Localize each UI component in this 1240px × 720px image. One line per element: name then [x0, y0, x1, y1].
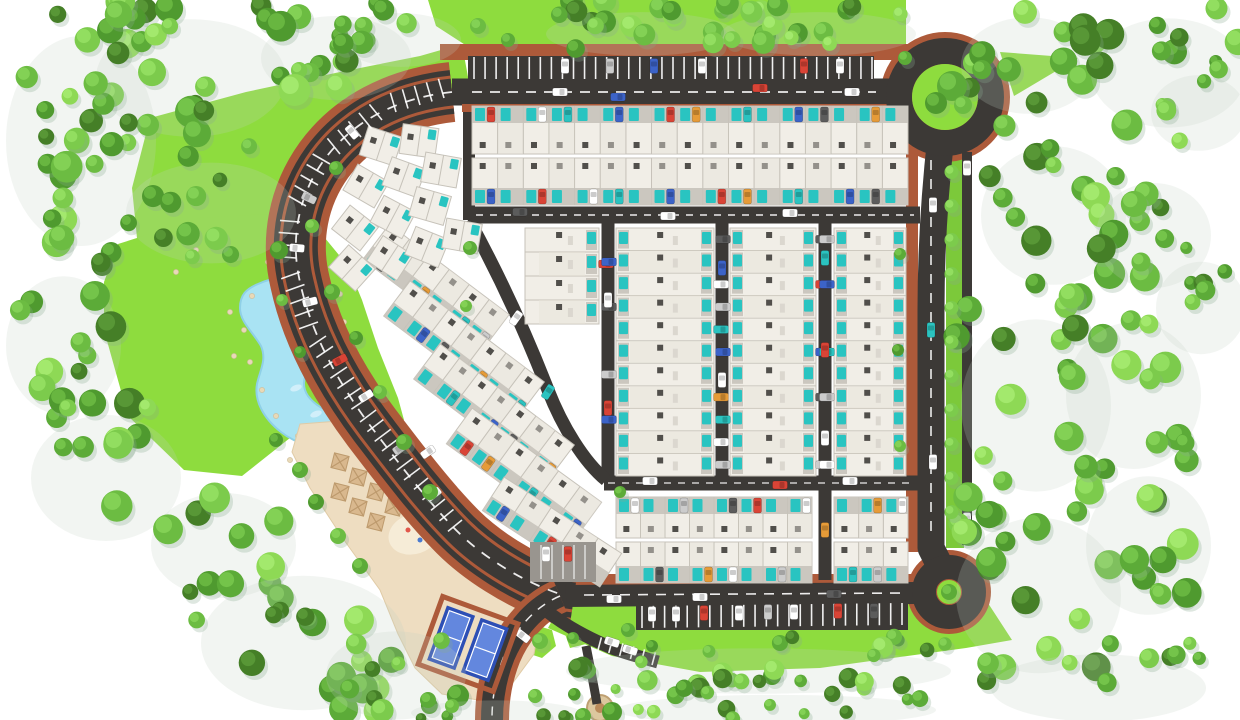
car	[821, 251, 829, 266]
car	[843, 477, 858, 485]
car	[700, 606, 708, 621]
car	[820, 235, 835, 243]
car	[929, 198, 937, 213]
car	[743, 107, 751, 122]
car	[487, 107, 495, 122]
car	[845, 88, 860, 96]
car	[821, 343, 829, 358]
car	[680, 498, 688, 513]
car	[834, 604, 842, 619]
car	[795, 189, 803, 204]
car	[656, 567, 664, 582]
car	[872, 107, 880, 122]
car	[718, 189, 726, 204]
car	[778, 567, 786, 582]
car	[672, 607, 680, 622]
car	[604, 401, 612, 416]
car	[631, 498, 639, 513]
car	[729, 567, 737, 582]
car	[849, 567, 857, 582]
car	[820, 280, 835, 288]
car	[714, 280, 729, 288]
car	[564, 547, 572, 562]
car	[667, 189, 675, 204]
car	[874, 498, 882, 513]
car	[716, 303, 731, 311]
car	[698, 59, 706, 74]
car	[821, 523, 829, 538]
car	[692, 107, 700, 122]
car	[615, 189, 623, 204]
cabana	[331, 453, 349, 471]
car	[872, 189, 880, 204]
car	[820, 393, 835, 401]
car	[729, 498, 737, 513]
housing-row-south-2	[616, 542, 812, 583]
housing-row-south-1	[616, 497, 812, 538]
car	[602, 371, 617, 379]
car	[611, 93, 626, 101]
car	[650, 59, 658, 74]
car	[602, 416, 617, 424]
car	[538, 189, 546, 204]
car	[590, 189, 598, 204]
car	[790, 605, 798, 620]
car	[602, 258, 617, 266]
housing-row-north-1	[472, 106, 908, 154]
car	[553, 88, 568, 96]
car	[803, 498, 811, 513]
car	[513, 208, 528, 216]
car	[898, 498, 906, 513]
car	[538, 107, 546, 122]
car	[643, 477, 658, 485]
car	[705, 567, 713, 582]
car	[846, 189, 854, 204]
car	[764, 605, 772, 620]
car	[783, 209, 798, 217]
car	[648, 607, 656, 622]
car	[718, 373, 726, 388]
car	[716, 235, 731, 243]
car	[289, 243, 305, 252]
car	[714, 438, 729, 446]
car	[716, 348, 731, 356]
car	[743, 189, 751, 204]
car	[821, 431, 829, 446]
housing-row-north-2	[472, 158, 908, 205]
car	[716, 461, 731, 469]
car	[661, 212, 676, 220]
car	[604, 293, 612, 308]
car	[927, 323, 935, 338]
cabana	[349, 498, 367, 516]
car	[714, 325, 729, 333]
site-plan	[0, 0, 1240, 720]
car	[718, 261, 726, 276]
car	[561, 59, 569, 74]
villa-house	[421, 152, 462, 188]
car	[615, 107, 623, 122]
car	[716, 416, 731, 424]
cabana	[331, 483, 349, 501]
car	[836, 59, 844, 74]
housing-row-south-2b	[834, 542, 908, 583]
housing-row-south-1b	[834, 497, 908, 538]
car	[754, 498, 762, 513]
car	[753, 84, 768, 92]
cabana	[349, 468, 367, 486]
car	[667, 107, 675, 122]
car	[929, 455, 937, 470]
car	[963, 161, 971, 176]
car	[820, 461, 835, 469]
car	[564, 107, 572, 122]
site-plan-image	[0, 0, 1240, 720]
car	[735, 606, 743, 621]
car	[607, 595, 622, 603]
car	[542, 547, 550, 562]
car	[874, 567, 882, 582]
car	[714, 393, 729, 401]
parking-lot	[530, 542, 596, 582]
car	[800, 59, 808, 74]
car	[827, 590, 842, 598]
car	[773, 481, 788, 489]
car	[693, 593, 708, 601]
car	[487, 189, 495, 204]
car	[606, 59, 614, 74]
housing-col-3	[716, 228, 831, 476]
housing-col-2	[602, 228, 729, 476]
car	[820, 107, 828, 122]
car	[795, 107, 803, 122]
car	[870, 604, 878, 619]
cabana	[367, 513, 385, 531]
